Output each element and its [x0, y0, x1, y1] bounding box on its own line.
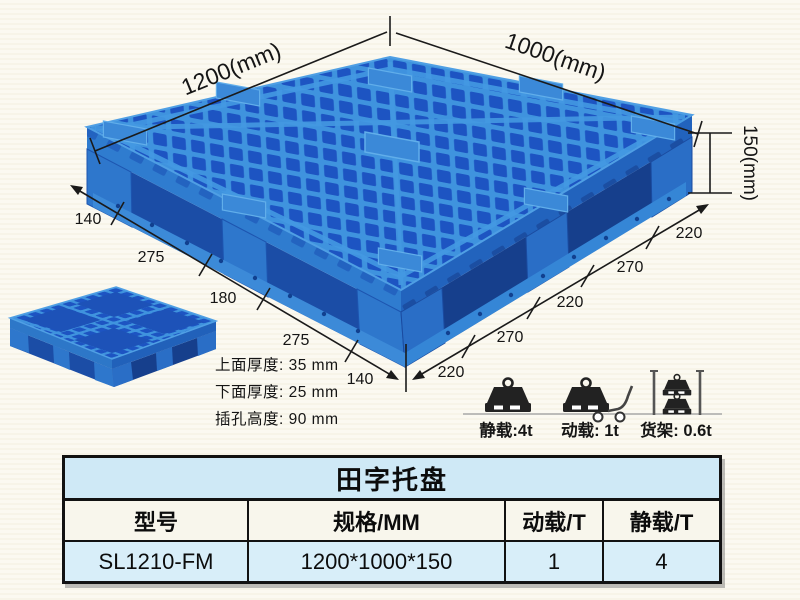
- header-static-load: 静载/T: [604, 501, 719, 540]
- static-load-icon: [485, 379, 531, 413]
- header-model: 型号: [65, 501, 249, 540]
- spec-table: 田字托盘 型号 规格/MM 动载/T 静载/T SL1210-FM 1200*1…: [62, 455, 722, 584]
- dim-segment-label: 220: [676, 225, 703, 242]
- dynamic-load-icon: [563, 379, 632, 422]
- spec-table-header-row: 型号 规格/MM 动载/T 静载/T: [65, 501, 719, 540]
- dim-segment-label: 140: [347, 371, 374, 388]
- load-capacity-icons: 静载:4t 动载: 1t 货架: 0.6t: [463, 371, 722, 440]
- rack-load-icon: [650, 371, 704, 415]
- small-pallet: [10, 287, 216, 387]
- header-spec: 规格/MM: [249, 501, 506, 540]
- static-load-label: 静载:4t: [479, 420, 533, 440]
- thickness-notes: 上面厚度: 35 mm 下面厚度: 25 mm 插孔高度: 90 mm: [215, 356, 338, 428]
- cell-spec: 1200*1000*150: [249, 542, 506, 581]
- pallet-illustration: 1200(mm) 1000(mm) 150(mm) 140 275 180 27…: [0, 0, 800, 452]
- note-top-thickness: 上面厚度: 35 mm: [215, 356, 338, 374]
- note-slot-height: 插孔高度: 90 mm: [215, 410, 338, 428]
- cell-dynamic-load: 1: [506, 542, 604, 581]
- dim-segment-label: 275: [283, 332, 310, 349]
- dim-segment-label: 275: [138, 249, 165, 266]
- cell-model: SL1210-FM: [65, 542, 249, 581]
- dim-segment-label: 220: [557, 294, 584, 311]
- dim-segment-label: 270: [617, 259, 644, 276]
- product-sheet: 1200(mm) 1000(mm) 150(mm) 140 275 180 27…: [0, 0, 800, 600]
- dynamic-load-label: 动载: 1t: [561, 421, 619, 440]
- spec-table-data-row: SL1210-FM 1200*1000*150 1 4: [65, 540, 719, 581]
- note-bottom-thickness: 下面厚度: 25 mm: [215, 383, 338, 401]
- cell-static-load: 4: [604, 542, 719, 581]
- dim-150: 150(mm): [739, 125, 760, 201]
- dim-segment-label: 220: [438, 364, 465, 381]
- dim-1000: 1000(mm): [502, 27, 610, 86]
- spec-table-title: 田字托盘: [65, 458, 719, 501]
- header-dynamic-load: 动载/T: [506, 501, 604, 540]
- rack-load-label: 货架: 0.6t: [640, 420, 712, 440]
- dim-segment-label: 140: [75, 211, 102, 228]
- dim-segment-label: 180: [210, 290, 237, 307]
- dim-segment-label: 270: [497, 329, 524, 346]
